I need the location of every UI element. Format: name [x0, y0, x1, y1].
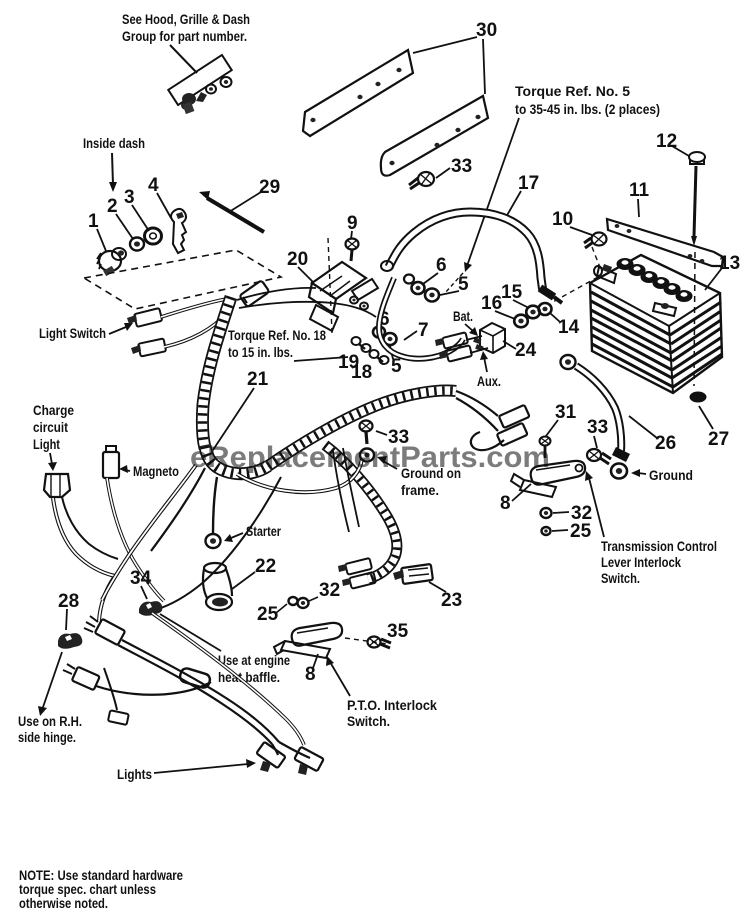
svg-text:to 35-45 in. lbs. (2 places): to 35-45 in. lbs. (2 places)	[515, 102, 660, 117]
svg-text:Torque Ref. No. 18: Torque Ref. No. 18	[228, 328, 326, 343]
svg-text:Torque Ref. No. 5: Torque Ref. No. 5	[515, 84, 631, 99]
svg-text:Inside dash: Inside dash	[83, 136, 145, 151]
svg-text:See Hood, Grille & Dash: See Hood, Grille & Dash	[122, 12, 250, 27]
svg-text:Bat.: Bat.	[453, 309, 473, 324]
svg-text:5: 5	[458, 274, 469, 295]
svg-text:24: 24	[515, 340, 537, 361]
svg-text:25: 25	[257, 604, 279, 625]
svg-text:NOTE: Use standard hardware: NOTE: Use standard hardware	[19, 868, 183, 883]
svg-text:26: 26	[655, 433, 676, 454]
svg-text:12: 12	[656, 131, 677, 152]
svg-text:eReplacementParts.com: eReplacementParts.com	[190, 441, 550, 474]
svg-text:33: 33	[587, 417, 608, 438]
svg-text:23: 23	[441, 590, 462, 611]
svg-text:heat baffle.: heat baffle.	[218, 670, 280, 685]
svg-text:8: 8	[500, 493, 511, 514]
svg-text:frame.: frame.	[401, 483, 439, 498]
svg-text:20: 20	[287, 249, 308, 270]
svg-text:7: 7	[418, 320, 429, 341]
svg-text:5: 5	[391, 356, 402, 377]
svg-text:Aux.: Aux.	[477, 374, 501, 389]
svg-text:Light: Light	[33, 437, 60, 452]
svg-text:Lights: Lights	[117, 767, 152, 782]
svg-text:15: 15	[501, 282, 523, 303]
svg-text:16: 16	[481, 293, 502, 314]
svg-text:14: 14	[558, 317, 580, 338]
svg-text:21: 21	[247, 369, 269, 390]
svg-text:side hinge.: side hinge.	[18, 730, 76, 745]
svg-text:Transmission Control: Transmission Control	[601, 539, 717, 554]
svg-text:35: 35	[387, 621, 409, 642]
svg-text:circuit: circuit	[33, 420, 68, 435]
svg-text:11: 11	[629, 180, 650, 201]
svg-text:Group for part number.: Group for part number.	[122, 29, 247, 44]
svg-text:Lever Interlock: Lever Interlock	[601, 555, 681, 570]
svg-text:31: 31	[555, 402, 577, 423]
svg-text:18: 18	[351, 362, 372, 383]
svg-text:Use on R.H.: Use on R.H.	[18, 714, 82, 729]
svg-text:Charge: Charge	[33, 403, 74, 418]
svg-text:10: 10	[552, 209, 573, 230]
svg-text:Magneto: Magneto	[133, 464, 179, 479]
svg-text:27: 27	[708, 429, 729, 450]
svg-text:33: 33	[451, 156, 472, 177]
svg-text:25: 25	[570, 521, 592, 542]
svg-text:to 15 in. lbs.: to 15 in. lbs.	[228, 345, 293, 360]
svg-text:17: 17	[518, 173, 539, 194]
svg-text:3: 3	[124, 187, 135, 208]
svg-text:1: 1	[88, 211, 99, 232]
svg-text:29: 29	[259, 177, 280, 198]
svg-text:otherwise noted.: otherwise noted.	[19, 896, 108, 911]
svg-text:32: 32	[319, 580, 340, 601]
svg-text:13: 13	[719, 253, 740, 274]
svg-text:34: 34	[130, 568, 152, 589]
svg-text:Switch.: Switch.	[347, 714, 390, 729]
svg-text:P.T.O. Interlock: P.T.O. Interlock	[347, 698, 437, 713]
svg-text:Switch.: Switch.	[601, 571, 640, 586]
svg-text:22: 22	[255, 556, 276, 577]
svg-text:Light Switch: Light Switch	[39, 326, 106, 341]
svg-text:2: 2	[107, 196, 118, 217]
svg-text:Ground: Ground	[649, 468, 693, 483]
svg-text:Use at engine: Use at engine	[218, 653, 290, 668]
svg-text:30: 30	[476, 20, 497, 41]
svg-text:28: 28	[58, 591, 79, 612]
svg-text:torque spec. chart unless: torque spec. chart unless	[19, 882, 156, 897]
svg-text:9: 9	[347, 213, 358, 234]
